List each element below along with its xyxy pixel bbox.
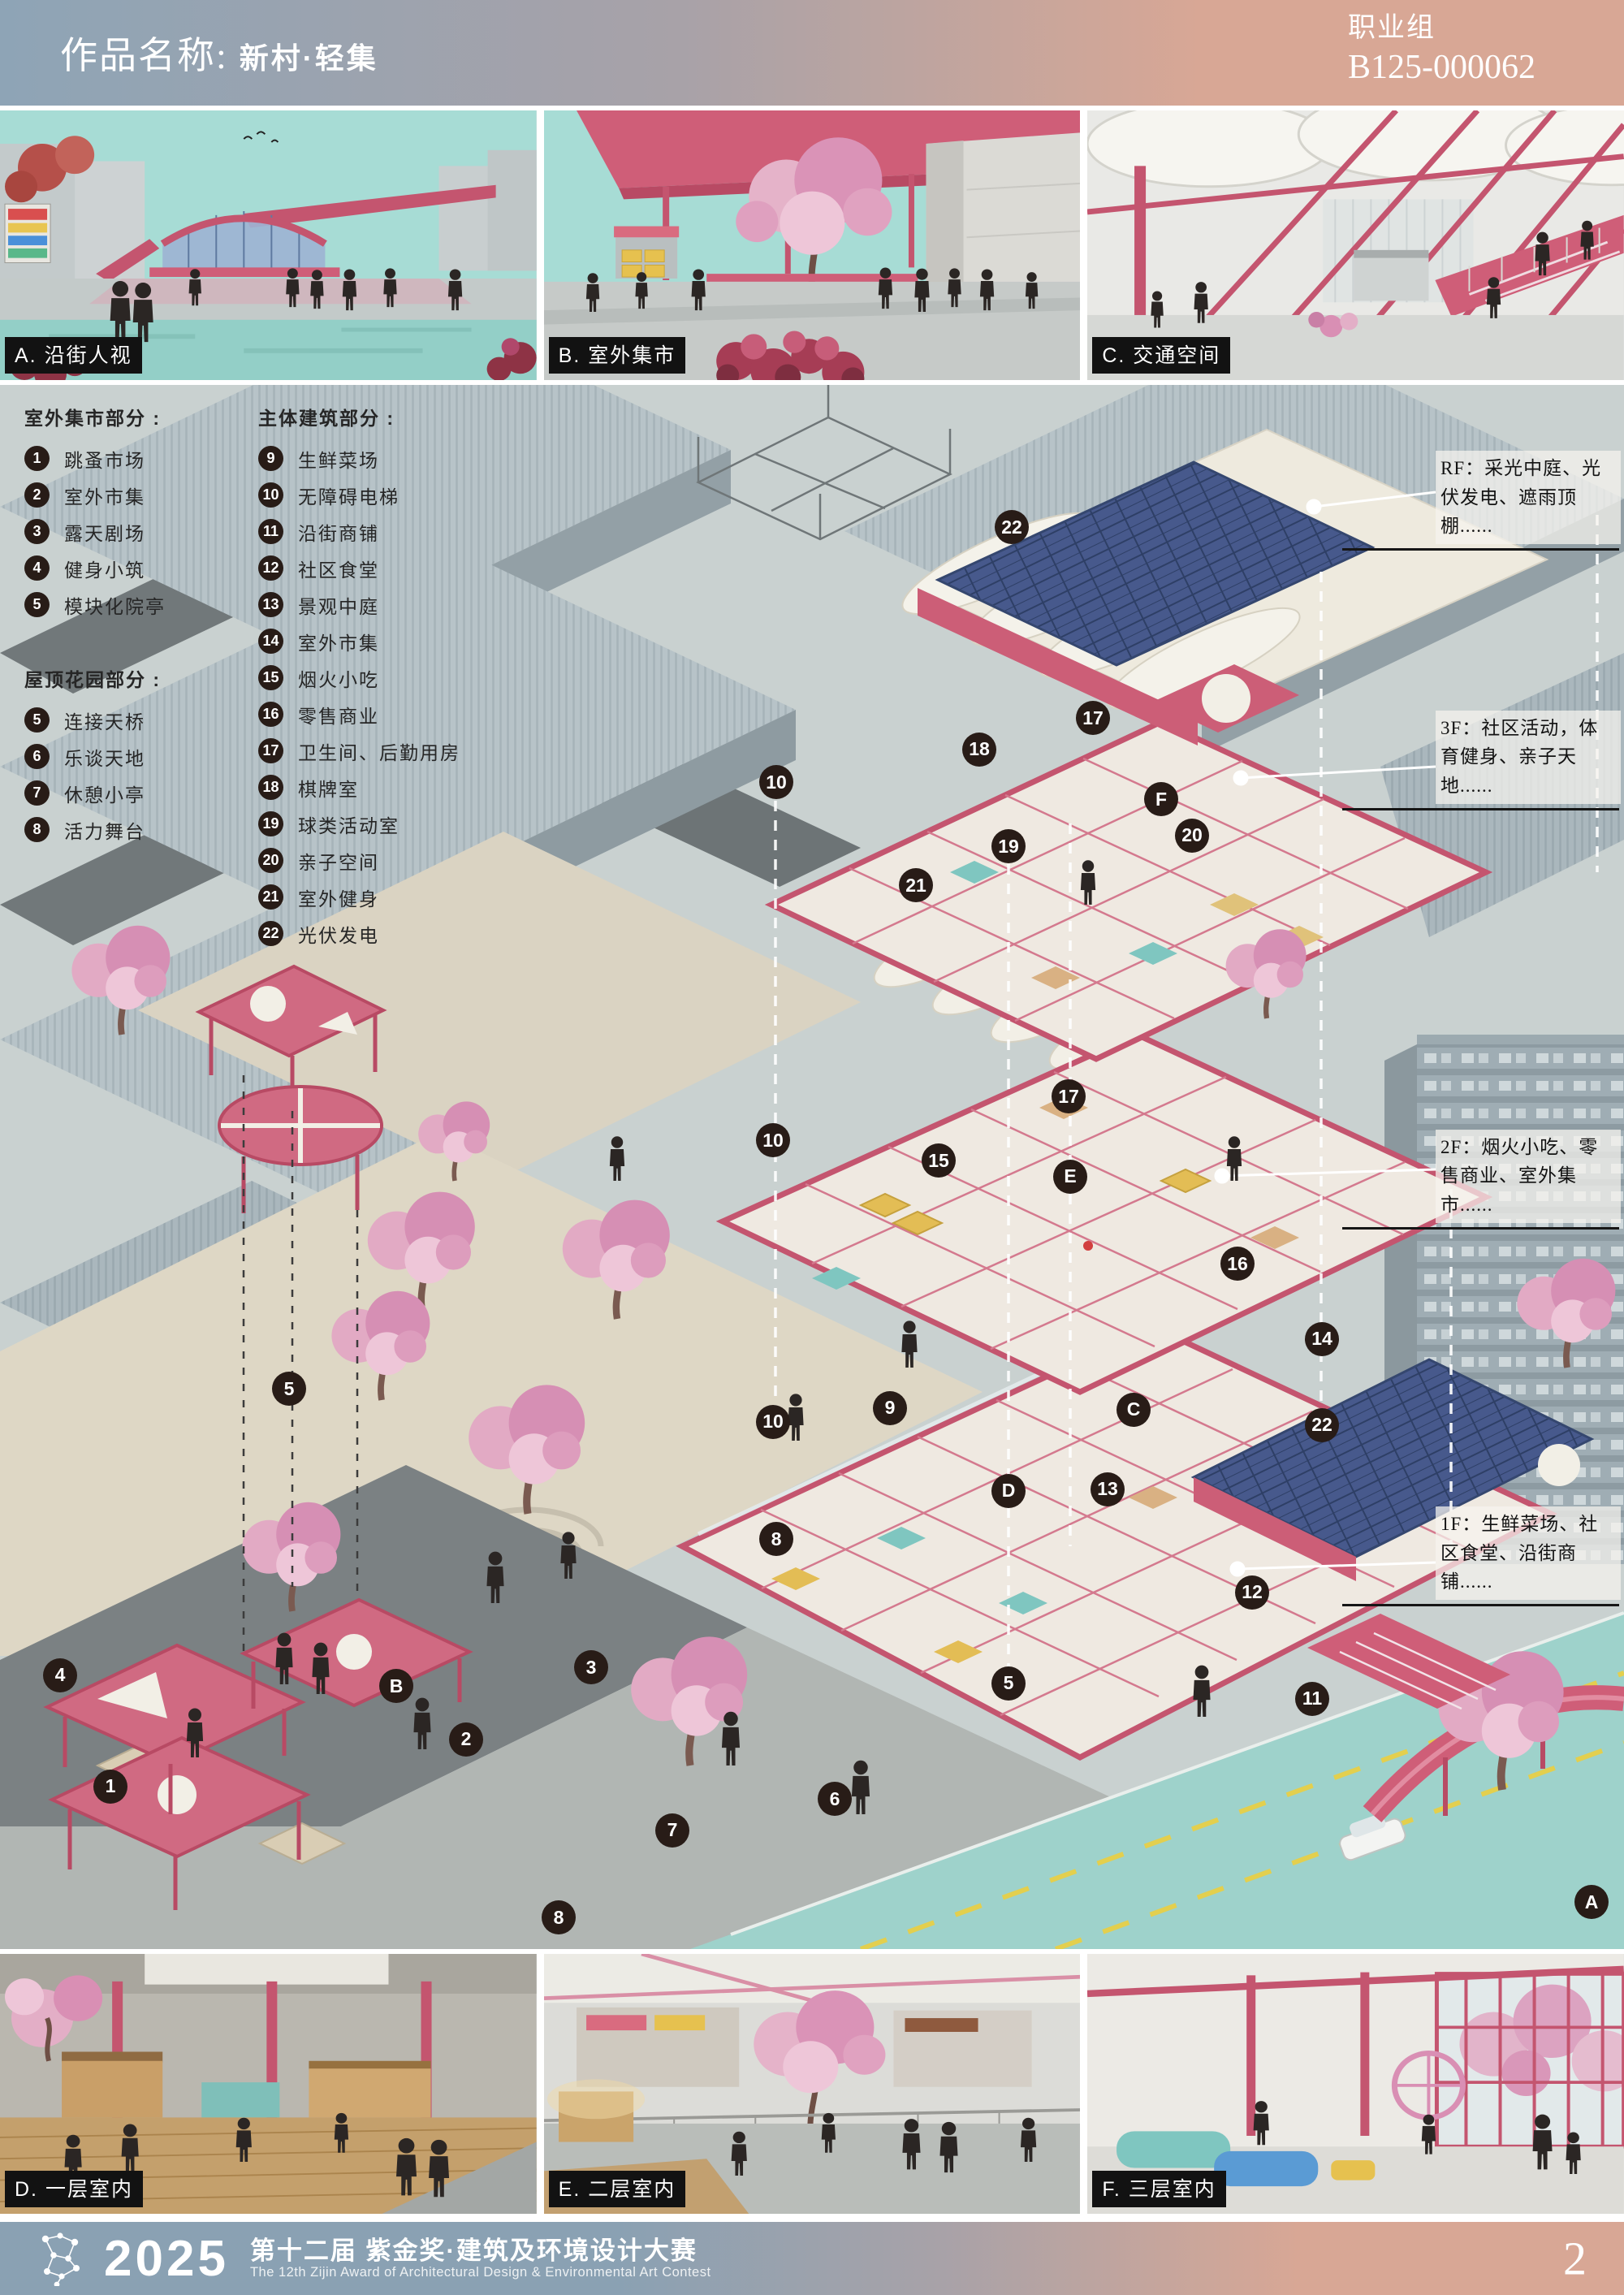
legend-item-number: 17	[258, 738, 283, 763]
bottom-photo-strip: D. 一层室内 E. 二层室内	[0, 1954, 1624, 2214]
photo-interior-3f: F. 三层室内	[1087, 1954, 1624, 2214]
legend-item: 17卫生间、后勤用房	[258, 733, 460, 769]
legend-item-label: 健身小筑	[64, 555, 145, 582]
diagram-marker-15: 15	[922, 1143, 956, 1178]
diagram-marker-B: B	[379, 1669, 413, 1703]
legend-group-1: 屋顶花园部分 :5连接天桥6乐谈天地7休憩小亭8活力舞台	[24, 664, 161, 848]
legend-item-number: 5	[24, 592, 50, 617]
photo-label-f: F. 三层室内	[1092, 2171, 1225, 2207]
legend-item: 9生鲜菜场	[258, 440, 460, 477]
diagram-marker-22: 22	[995, 510, 1029, 544]
legend-item-number: 21	[258, 884, 283, 910]
diagram-marker-20: 20	[1175, 819, 1209, 853]
diagram-marker-4: 4	[43, 1658, 77, 1692]
legend-item-label: 乐谈天地	[64, 743, 145, 771]
legend-item: 8活力舞台	[24, 811, 161, 848]
legend-item: 13景观中庭	[258, 586, 460, 623]
legend-item-number: 22	[258, 921, 283, 946]
legend-group-0: 室外集市部分 :1跳蚤市场2室外市集3露天剧场4健身小筑5模块化院亭	[24, 403, 166, 623]
legend-item: 7休憩小亭	[24, 775, 161, 811]
diagram-marker-16: 16	[1220, 1247, 1255, 1281]
legend-item-label: 活力舞台	[64, 816, 145, 844]
legend-item-label: 模块化院亭	[64, 591, 166, 619]
legend-item-number: 14	[258, 629, 283, 654]
legend-item-number: 20	[258, 848, 283, 873]
axon-scene-illustration	[0, 385, 1624, 1949]
diagram-marker-10: 10	[756, 1405, 790, 1439]
legend-item-label: 球类活动室	[298, 810, 400, 838]
diagram-marker-7: 7	[655, 1813, 689, 1848]
entry-id: B125-000062	[1348, 46, 1535, 89]
diagram-marker-F: F	[1144, 782, 1178, 816]
diagram-marker-11: 11	[1295, 1682, 1329, 1716]
legend-item-number: 1	[24, 446, 50, 471]
work-title: 新村·轻集	[240, 41, 378, 75]
diagram-marker-E: E	[1053, 1160, 1087, 1194]
diagram-marker-22: 22	[1305, 1408, 1339, 1442]
photo-circulation-space: C. 交通空间	[1087, 110, 1624, 380]
page-title: 作品名称:新村·轻集	[60, 26, 378, 80]
diagram-marker-C: C	[1116, 1393, 1151, 1427]
diagram-marker-8: 8	[759, 1522, 793, 1556]
legend-item-number: 6	[24, 744, 50, 769]
legend-item-number: 4	[24, 555, 50, 581]
legend-item-label: 无障碍电梯	[298, 482, 400, 509]
legend-item-number: 9	[258, 446, 283, 471]
legend-item-label: 沿街商铺	[298, 518, 379, 546]
legend-item: 6乐谈天地	[24, 738, 161, 775]
zijin-award-logo	[37, 2231, 83, 2286]
legend-item-label: 光伏发电	[298, 920, 379, 948]
legend-item: 16零售商业	[258, 696, 460, 733]
legend-item-number: 10	[258, 482, 283, 508]
work-title-label: 作品名称:	[60, 35, 228, 76]
legend-item-number: 12	[258, 555, 283, 581]
legend-group-title: 主体建筑部分 :	[258, 403, 460, 430]
top-photo-strip: A. 沿街人视	[0, 110, 1624, 380]
floor-annotation-2f: 2F：烟火小吃、零售商业、室外集市......	[1436, 1130, 1621, 1223]
photo-interior-1f: D. 一层室内	[0, 1954, 537, 2214]
diagram-marker-D: D	[991, 1474, 1026, 1508]
entry-group: 职业组	[1348, 11, 1535, 46]
legend-group-2: 主体建筑部分 :9生鲜菜场10无障碍电梯11沿街商铺12社区食堂13景观中庭14…	[258, 403, 460, 952]
legend-item: 15烟火小吃	[258, 659, 460, 696]
legend-item-label: 室外健身	[298, 884, 379, 911]
legend-item-label: 生鲜菜场	[298, 445, 379, 473]
photo-label-d: D. 一层室内	[5, 2171, 143, 2207]
diagram-marker-3: 3	[574, 1650, 608, 1684]
photo-label-a: A. 沿街人视	[5, 337, 142, 374]
floor-annotation-3f: 3F：社区活动，体育健身、亲子天地......	[1436, 711, 1621, 804]
legend-item: 2室外市集	[24, 477, 166, 513]
diagram-marker-12: 12	[1235, 1575, 1269, 1610]
legend-item-number: 15	[258, 665, 283, 690]
legend-item-label: 亲子空间	[298, 847, 379, 875]
legend-item: 14室外市集	[258, 623, 460, 659]
legend-item-label: 室外市集	[64, 482, 145, 509]
diagram-marker-5: 5	[991, 1666, 1026, 1701]
legend-item: 21室外健身	[258, 879, 460, 915]
legend-item: 22光伏发电	[258, 915, 460, 952]
diagram-marker-1: 1	[93, 1770, 127, 1804]
legend-item-label: 景观中庭	[298, 591, 379, 619]
legend-item: 20亲子空间	[258, 842, 460, 879]
diagram-marker-21: 21	[899, 868, 933, 902]
legend-group-title: 屋顶花园部分 :	[24, 664, 161, 692]
page-number: 2	[1563, 2232, 1587, 2286]
competition-poster-page: 作品名称:新村·轻集 职业组 B125-000062	[0, 0, 1624, 2295]
contest-title-en: The 12th Zijin Award of Architectural De…	[250, 2265, 711, 2280]
diagram-marker-8: 8	[542, 1900, 576, 1934]
diagram-marker-18: 18	[962, 733, 996, 767]
photo-label-e: E. 二层室内	[549, 2171, 686, 2207]
legend-item: 5模块化院亭	[24, 586, 166, 623]
diagram-marker-19: 19	[991, 829, 1026, 863]
legend-item-number: 2	[24, 482, 50, 508]
footer-year: 2025	[104, 2230, 229, 2288]
legend-item-label: 连接天桥	[64, 707, 145, 734]
diagram-marker-6: 6	[818, 1782, 852, 1816]
legend-item: 5连接天桥	[24, 702, 161, 738]
floor-annotation-rf: RF：采光中庭、光伏发电、遮雨顶棚......	[1436, 451, 1621, 544]
legend-item: 18棋牌室	[258, 769, 460, 806]
diagram-marker-A: A	[1574, 1885, 1609, 1919]
diagram-marker-9: 9	[873, 1391, 907, 1425]
legend-item-label: 社区食堂	[298, 555, 379, 582]
legend-item-label: 跳蚤市场	[64, 445, 145, 473]
legend-item: 11沿街商铺	[258, 513, 460, 550]
legend-item-label: 露天剧场	[64, 518, 145, 546]
header-bar: 作品名称:新村·轻集 职业组 B125-000062	[0, 0, 1624, 106]
photo-interior-2f: E. 二层室内	[544, 1954, 1081, 2214]
diagram-marker-5: 5	[272, 1372, 306, 1406]
legend-group-title: 室外集市部分 :	[24, 403, 166, 430]
diagram-marker-2: 2	[449, 1722, 483, 1757]
legend-item-label: 烟火小吃	[298, 664, 379, 692]
photo-street-view: A. 沿街人视	[0, 110, 537, 380]
legend-item-number: 8	[24, 817, 50, 842]
diagram-marker-13: 13	[1091, 1472, 1125, 1506]
exploded-axonometric-diagram: 室外集市部分 :1跳蚤市场2室外市集3露天剧场4健身小筑5模块化院亭屋顶花园部分…	[0, 385, 1624, 1949]
footer-titles: 第十二届 紫金奖·建筑及环境设计大赛 The 12th Zijin Award …	[250, 2237, 711, 2281]
footer-bar: 2025 第十二届 紫金奖·建筑及环境设计大赛 The 12th Zijin A…	[0, 2222, 1624, 2295]
legend-item: 19球类活动室	[258, 806, 460, 842]
legend-item-number: 13	[258, 592, 283, 617]
photo-label-b: B. 室外集市	[549, 337, 686, 374]
legend-item-number: 16	[258, 702, 283, 727]
diagram-marker-14: 14	[1305, 1322, 1339, 1356]
legend-item-number: 18	[258, 775, 283, 800]
legend-item-number: 11	[258, 519, 283, 544]
legend-item-label: 零售商业	[298, 701, 379, 728]
legend-item-number: 3	[24, 519, 50, 544]
legend-item-label: 棋牌室	[298, 774, 359, 802]
diagram-marker-17: 17	[1052, 1079, 1086, 1113]
diagram-marker-17: 17	[1076, 701, 1110, 735]
legend-item: 10无障碍电梯	[258, 477, 460, 513]
entry-info: 职业组 B125-000062	[1348, 11, 1535, 89]
legend-item: 3露天剧场	[24, 513, 166, 550]
photo-label-c: C. 交通空间	[1092, 337, 1230, 374]
contest-title-cn: 第十二届 紫金奖·建筑及环境设计大赛	[250, 2237, 711, 2266]
diagram-marker-10: 10	[759, 765, 793, 799]
floor-annotation-1f: 1F：生鲜菜场、社区食堂、沿街商铺......	[1436, 1506, 1621, 1600]
legend-item: 4健身小筑	[24, 550, 166, 586]
legend-item: 12社区食堂	[258, 550, 460, 586]
legend-item-number: 7	[24, 780, 50, 806]
legend-item-label: 休憩小亭	[64, 780, 145, 807]
legend-item-label: 室外市集	[298, 628, 379, 655]
legend-item-number: 5	[24, 707, 50, 733]
legend-item-label: 卫生间、后勤用房	[298, 737, 460, 765]
photo-outdoor-market: B. 室外集市	[544, 110, 1081, 380]
legend-item-number: 19	[258, 811, 283, 836]
legend-item: 1跳蚤市场	[24, 440, 166, 477]
diagram-marker-10: 10	[756, 1123, 790, 1157]
